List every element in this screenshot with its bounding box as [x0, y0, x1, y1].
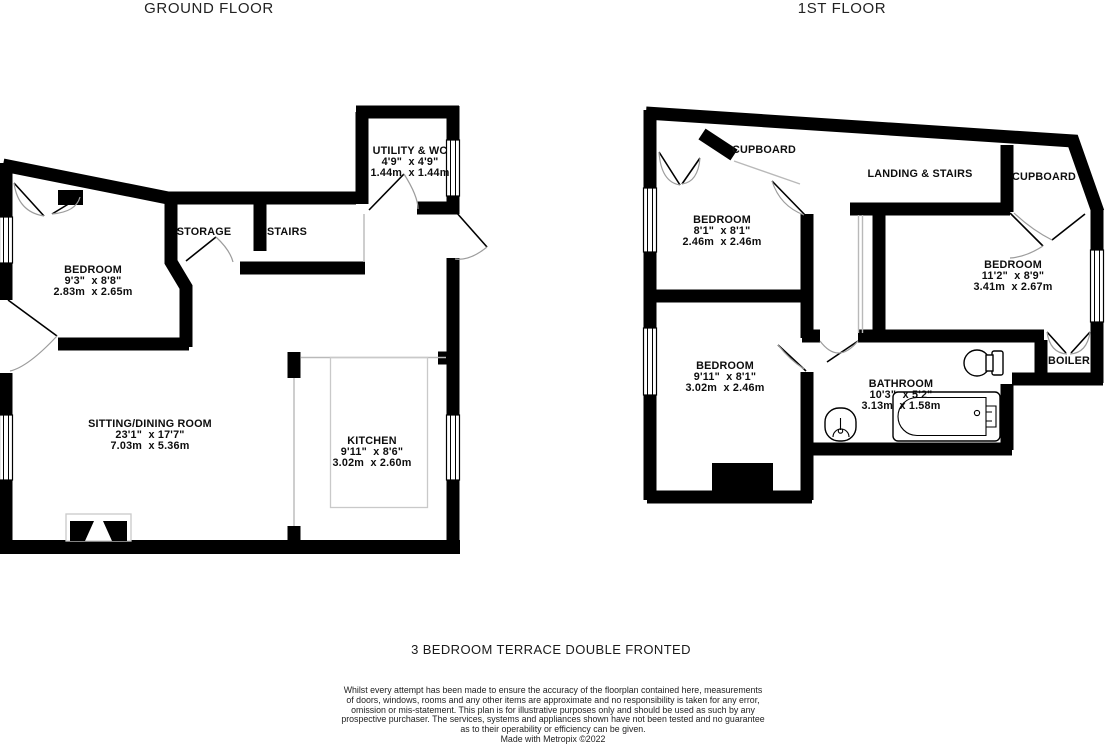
ff-window-bedroom3: [644, 328, 657, 395]
plan-headline: 3 BEDROOM TERRACE DOUBLE FRONTED: [411, 642, 691, 657]
floorplan-canvas: [0, 0, 1112, 752]
room-label-storage: STORAGE: [177, 227, 232, 238]
gf-window-bedroom: [0, 217, 13, 263]
gf-storage-door: [186, 237, 233, 262]
disclaimer-text: Whilst every attempt has been made to en…: [341, 686, 764, 745]
credit-line: Made with Metropix ©2022: [341, 735, 764, 745]
ff-interior-walls: [645, 134, 1044, 380]
ff-chimney-breast: [712, 463, 773, 491]
room-label-bedroom-gf: BEDROOM 9'3" x 8'8" 2.83m x 2.65m: [53, 265, 132, 298]
kitchen-counter: [331, 358, 428, 508]
room-dims-metric: 2.46m x 2.46m: [682, 237, 761, 248]
room-label-cupboard-right: CUPBOARD: [1012, 172, 1076, 183]
room-dims-metric: 3.02m x 2.60m: [332, 458, 411, 469]
room-label-utility-wc: UTILITY & WC 4'9" x 4'9" 1.44m x 1.44m: [370, 146, 449, 179]
gf-chimney-breast: [66, 514, 131, 541]
room-label-stairs: STAIRS: [267, 227, 307, 238]
ff-cupboard-front-line: [734, 161, 800, 184]
room-name: CUPBOARD: [1012, 172, 1076, 183]
ff-window-bedroom1: [644, 188, 657, 252]
gf-interior-walls: [58, 198, 365, 545]
toilet: [964, 350, 1003, 376]
ff-window-bedroom2: [1091, 250, 1104, 322]
sink: [825, 408, 856, 441]
room-label-bathroom: BATHROOM 10'3" x 5'2" 3.13m x 1.58m: [861, 379, 940, 412]
ff-bedroom1-door: [772, 181, 806, 216]
floor-title-first: 1ST FLOOR: [798, 0, 886, 17]
ff-stairs-lines: [859, 215, 863, 333]
ff-bathroom-door: [820, 341, 858, 362]
room-name: CUPBOARD: [732, 145, 796, 156]
gf-bedroom-door: [8, 300, 57, 371]
floor-title-ground: GROUND FLOOR: [144, 0, 274, 17]
floorplan-page: GROUND FLOOR 1ST FLOOR UTILITY & WC 4'9"…: [0, 0, 1112, 752]
room-dims-metric: 1.44m x 1.44m: [370, 168, 449, 179]
ff-bedroom1-double-door: [659, 152, 700, 185]
gf-front-door: [455, 212, 487, 259]
room-dims-metric: 3.41m x 2.67m: [973, 282, 1052, 293]
room-name: STAIRS: [267, 227, 307, 238]
room-label-cupboard-left: CUPBOARD: [732, 145, 796, 156]
gf-window-sitting: [0, 415, 13, 480]
room-label-sitting-dining: SITTING/DINING ROOM 23'1" x 17'7" 7.03m …: [88, 419, 212, 452]
ff-bedroom2-door: [1010, 213, 1043, 258]
room-label-bedroom1: BEDROOM 8'1" x 8'1" 2.46m x 2.46m: [682, 215, 761, 248]
gf-utility-door: [369, 174, 418, 210]
room-name: BOILER: [1048, 356, 1090, 367]
room-label-bedroom2: BEDROOM 11'2" x 8'9" 3.41m x 2.67m: [973, 260, 1052, 293]
room-label-kitchen: KITCHEN 9'11" x 8'6" 3.02m x 2.60m: [332, 436, 411, 469]
ff-cupboard-right-door: [1014, 213, 1085, 240]
ff-bedroom3-door: [778, 345, 806, 371]
room-dims-metric: 3.13m x 1.58m: [861, 401, 940, 412]
room-name: STORAGE: [177, 227, 232, 238]
room-dims-metric: 7.03m x 5.36m: [88, 441, 212, 452]
room-name: LANDING & STAIRS: [868, 169, 973, 180]
room-label-landing-stairs: LANDING & STAIRS: [868, 169, 973, 180]
ff-boiler-double-door: [1047, 332, 1090, 354]
room-dims-metric: 2.83m x 2.65m: [53, 287, 132, 298]
room-dims-metric: 3.02m x 2.46m: [685, 383, 764, 394]
room-label-bedroom3: BEDROOM 9'11" x 8'1" 3.02m x 2.46m: [685, 361, 764, 394]
gf-window-kitchen: [447, 415, 460, 480]
room-label-boiler: BOILER: [1048, 356, 1090, 367]
